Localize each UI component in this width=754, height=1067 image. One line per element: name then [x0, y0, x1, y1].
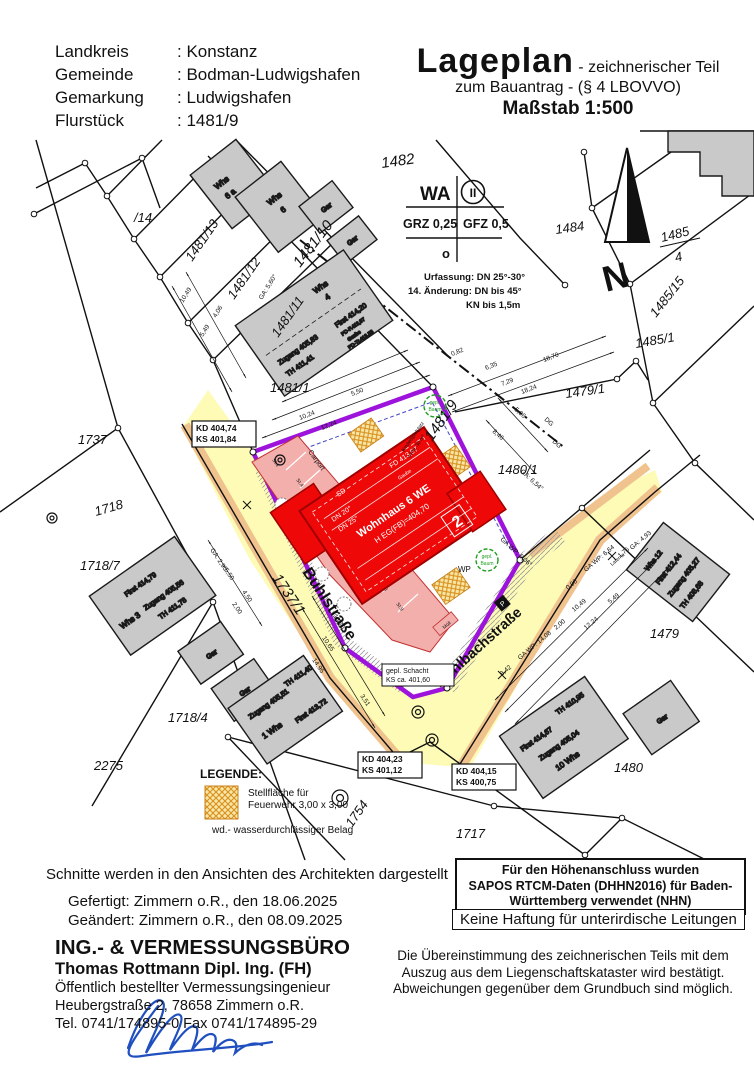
kd-value: KD 404,23 — [362, 754, 403, 764]
schnitte-note: Schnitte werden in den Ansichten des Arc… — [46, 866, 448, 883]
field-value: : 1481/9 — [177, 109, 238, 132]
schacht-label: KS ca. 401,60 — [386, 677, 430, 684]
tree-label: Baum — [428, 407, 441, 413]
dim-label: 12,24 — [320, 419, 338, 432]
legend: LEGENDE: Stellfläche für Feuerwehr 3,00 … — [200, 767, 353, 836]
legend-title: LEGENDE: — [200, 767, 262, 781]
parcel-label: 1480 — [614, 760, 644, 775]
tree-label: gepl. — [430, 400, 441, 406]
lageplan-page: Whs 6 a Whs 6 Gar Gar Whs 4 Zugang — [0, 0, 754, 1067]
engineer-name: Thomas Rottmann Dipl. Ing. (FH) — [55, 960, 312, 979]
dim-label: 5,49 — [607, 592, 621, 606]
zone-open: o — [442, 246, 450, 261]
scale-label: Maßstab 1:500 — [392, 98, 744, 120]
kd-box-3: KD 404,15 KS 400,75 — [452, 764, 516, 790]
legend-swatch-fire — [205, 786, 238, 819]
parcel-label: 1718/7 — [80, 558, 121, 573]
zone-note: 14. Änderung: DN bis 45° — [408, 286, 522, 297]
kd-value: KD 404,15 — [456, 766, 497, 776]
building-whs-4: Whs 4 Zugang 405,83 TH 411,41 First 414,… — [235, 250, 393, 397]
office-phone: Tel. 0741/174895-0 Fax 0741/174895-29 — [55, 1016, 317, 1032]
dim-label: 10,24 — [298, 409, 316, 422]
hoehenanschluss-line: Für den Höhenanschluss wurden — [459, 863, 742, 879]
field-label: Flurstück — [55, 109, 177, 132]
parcel-label: 4 — [673, 249, 684, 265]
dim-label: 6,35 — [484, 361, 499, 372]
parcel-label: 2275 — [93, 758, 124, 773]
dim-label: 7,29 — [500, 377, 515, 388]
parcel-label: 1717 — [456, 826, 486, 841]
dim-label: 4,50 — [240, 589, 253, 604]
parcel-label: /14 — [133, 210, 152, 225]
engineer-title: Öffentlich bestellter Vermessungsingenie… — [55, 980, 330, 996]
zone-wa: WA — [420, 184, 451, 205]
dim-label: 10,49 — [571, 597, 588, 613]
dim-label: 4,06 — [212, 304, 225, 319]
kd-value: KS 401,84 — [196, 434, 236, 444]
bestaetigung-line: Auszug aus dem Liegenschaftskataster wir… — [376, 965, 750, 982]
zone-gfz: GFZ 0,5 — [463, 217, 509, 231]
zone-storeys: II — [470, 186, 477, 200]
header-row: Flurstück : 1481/9 — [55, 109, 360, 132]
kd-value: KD 404,74 — [196, 423, 237, 433]
parcel-label: 1479/1 — [564, 381, 605, 401]
wp-label: WP — [458, 565, 471, 574]
tree-label: Baum — [480, 561, 493, 567]
kd-box-2: KD 404,23 KS 401,12 — [358, 752, 422, 778]
parcel-label: 1737 — [78, 432, 108, 447]
office-name: ING.- & VERMESSUNGSBÜRO — [55, 936, 350, 960]
dim-label: 8,46 — [491, 428, 505, 442]
bestaetigung-paragraph: Die Übereinstimmung des zeichnerischen T… — [376, 948, 750, 998]
page-title: Lageplan — [417, 42, 574, 80]
dim-label: 18,24 — [520, 383, 538, 396]
field-value: : Bodman-Ludwigshafen — [177, 63, 360, 86]
dim-label: 18,70 — [542, 351, 560, 364]
north-arrow: N — [598, 148, 649, 300]
kd-box-1: KD 404,74 KS 401,84 — [192, 421, 256, 447]
parcel-label: 1485/15 — [647, 273, 688, 320]
dim-label: 12,24 — [583, 615, 600, 631]
kd-value: KS 400,75 — [456, 777, 496, 787]
dim-label: 2,00 — [230, 601, 243, 616]
hoehenanschluss-line: Württemberg verwendet (NHN) — [459, 894, 742, 910]
north-letter: N — [598, 254, 633, 300]
office-address: Heubergstraße 2, 78658 Zimmern o.R. — [55, 998, 304, 1014]
parcel-label: 1479 — [650, 626, 679, 641]
zone-grz: GRZ 0,25 — [403, 217, 457, 231]
zone-block: WA II GRZ 0,25 GFZ 0,5 o Urfassung: DN 2… — [403, 176, 525, 311]
zone-note: Urfassung: DN 25°-30° — [424, 272, 525, 283]
field-label: Landkreis — [55, 40, 177, 63]
parcel-label: 1484 — [554, 218, 585, 237]
dim-label: DG — [543, 416, 555, 428]
schacht-box: gepl. Schacht KS ca. 401,60 — [382, 664, 454, 686]
parcel-label: 1482 — [380, 150, 416, 172]
geaendert-line: Geändert: Zimmern o.R., den 08.09.2025 — [68, 912, 342, 929]
field-value: : Konstanz — [177, 40, 257, 63]
dim-label: 10,49 — [179, 286, 194, 304]
tree-planned-2: gepl. Baum — [476, 549, 498, 571]
hoehenan schluss-line: SAPOS RTCM-Daten (DHHN2016) für Baden- — [459, 879, 742, 895]
parcel-label: 1718/4 — [168, 710, 208, 725]
dim-label: 5,50 — [222, 567, 235, 582]
page-subtitle: - zeichnerischer Teil — [578, 59, 719, 76]
parcel-label: 1485/1 — [634, 329, 676, 351]
dim-label: DG — [551, 438, 563, 450]
header-row: Gemeinde : Bodman-Ludwigshafen — [55, 63, 360, 86]
title-line2: zum Bauantrag - (§ 4 LBOVVO) — [392, 79, 744, 97]
field-value: : Ludwigshafen — [177, 86, 291, 109]
dim-label: 5,49 — [199, 323, 212, 338]
parcel-label: 1718 — [93, 496, 126, 519]
schacht-label: gepl. Schacht — [386, 668, 428, 675]
legend-item: wd.- wasserdurchlässiger Belag — [211, 825, 353, 836]
legend-item: Stellfläche für — [248, 788, 309, 799]
field-label: Gemeinde — [55, 63, 177, 86]
header-row: Landkreis : Konstanz — [55, 40, 360, 63]
parcel-label: 1481/13 — [182, 216, 222, 264]
hoehenanschluss-box: Für den Höhenanschluss wurden SAPOS RTCM… — [455, 858, 746, 915]
header-row: Gemarkung : Ludwigshafen — [55, 86, 360, 109]
header-block: Landkreis : Konstanz Gemeinde : Bodman-L… — [55, 40, 360, 132]
dim-label: 5,06 — [513, 406, 527, 420]
zone-note: KN bis 1,5m — [466, 300, 520, 311]
haftung-box: Keine Haftung für unterirdische Leitunge… — [452, 909, 745, 930]
dim-label: 0,82 — [450, 347, 465, 358]
bestaetigung-line: Die Übereinstimmung des zeichnerischen T… — [376, 948, 750, 965]
field-label: Gemarkung — [55, 86, 177, 109]
kd-value: KS 401,12 — [362, 765, 402, 775]
legend-item: Feuerwehr 3,00 x 3,00 — [248, 800, 348, 811]
building-garage-1480: Gar — [623, 680, 699, 754]
tree-label: gepl. — [482, 554, 493, 560]
gefertigt-line: Gefertigt: Zimmern o.R., den 18.06.2025 — [68, 893, 337, 910]
parcel-label: 1481/12 — [224, 254, 264, 302]
building-whs-10: First 414,67 TH 410,95 Zugang 405,04 10 … — [499, 676, 628, 798]
bestaetigung-line: Abweichungen gegenüber dem Grundbuch sin… — [376, 981, 750, 998]
building-corner — [668, 131, 754, 196]
title-block: Lageplan - zeichnerischer Teil zum Bauan… — [392, 42, 744, 120]
